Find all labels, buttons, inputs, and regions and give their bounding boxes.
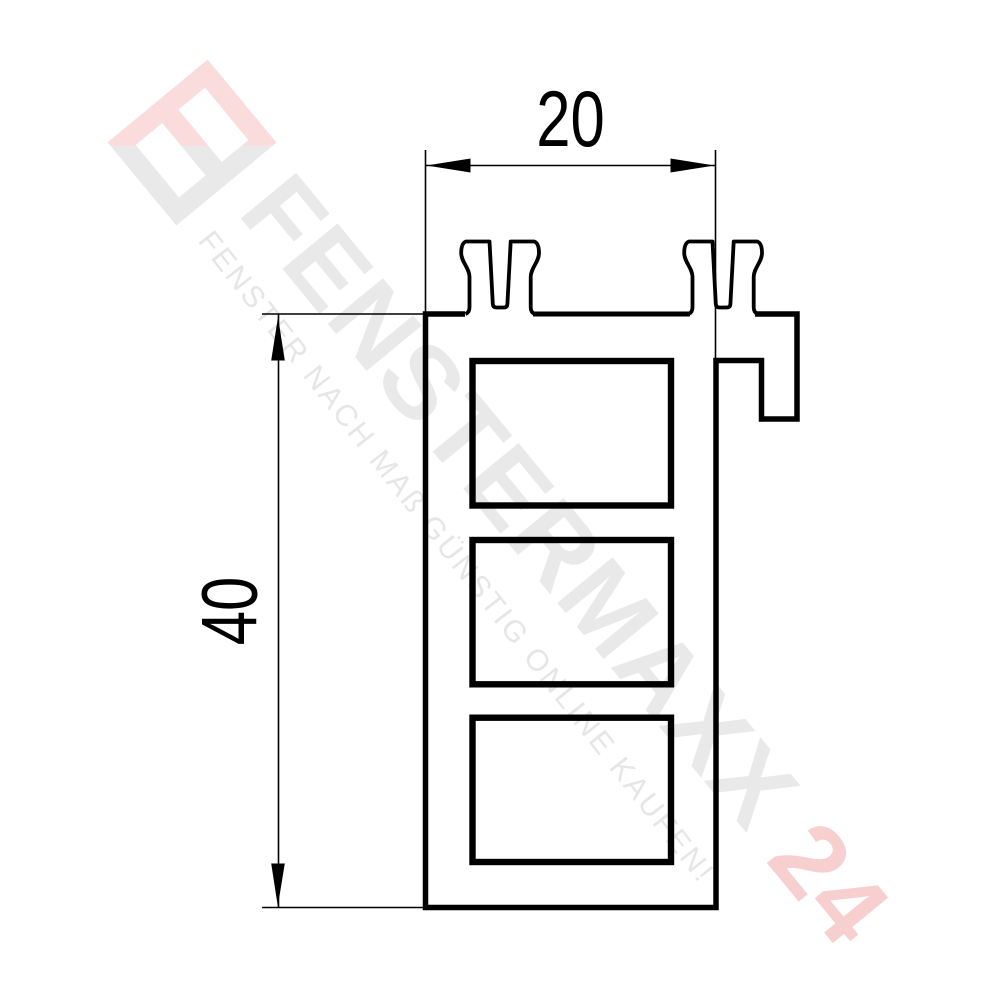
svg-text:40: 40 bbox=[186, 577, 274, 646]
svg-text:20: 20 bbox=[536, 76, 605, 164]
